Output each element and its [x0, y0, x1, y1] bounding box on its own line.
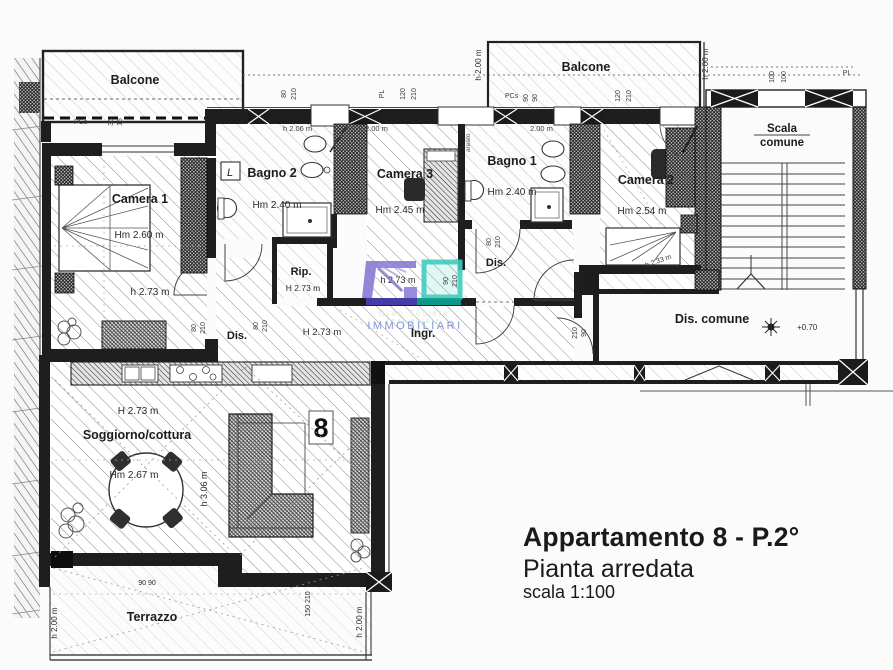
svg-text:+0.70: +0.70 [797, 323, 818, 332]
svg-text:Camera 2: Camera 2 [618, 173, 674, 187]
svg-text:35: 35 [108, 118, 115, 126]
svg-text:Balcone: Balcone [562, 60, 611, 74]
svg-text:Terrazzo: Terrazzo [127, 610, 178, 624]
svg-text:PL: PL [379, 90, 386, 99]
svg-text:PCs: PCs [505, 93, 519, 100]
svg-text:Hm 2.54 m: Hm 2.54 m [618, 206, 667, 217]
svg-text:Gran Societa: Gran Societa [379, 309, 450, 318]
svg-text:210: 210 [572, 327, 579, 339]
svg-text:210: 210 [411, 88, 418, 100]
svg-text:h 2.00 m: h 2.00 m [50, 607, 59, 638]
svg-text:90: 90 [581, 329, 588, 337]
svg-text:H 2.73 m: H 2.73 m [118, 406, 159, 417]
svg-text:Scala: Scala [767, 123, 798, 135]
svg-text:PCs: PCs [74, 119, 88, 126]
svg-text:100: 100 [769, 71, 776, 83]
svg-text:90: 90 [523, 94, 530, 102]
svg-text:Ingr.: Ingr. [411, 328, 435, 340]
svg-text:120: 120 [615, 90, 622, 102]
svg-text:H 2.73 m: H 2.73 m [303, 327, 342, 338]
svg-text:90 90: 90 90 [138, 580, 156, 587]
svg-text:Dis. comune: Dis. comune [675, 312, 749, 326]
svg-text:Hm 2.45 m: Hm 2.45 m [376, 205, 425, 216]
svg-text:210: 210 [262, 320, 269, 332]
svg-text:2.00 m: 2.00 m [365, 124, 388, 133]
svg-text:areato: areato [465, 133, 472, 152]
svg-text:Hm 2.67 m: Hm 2.67 m [110, 470, 159, 481]
svg-text:210: 210 [291, 88, 298, 100]
svg-text:h 2.00 m: h 2.00 m [701, 48, 710, 79]
svg-text:2.00 m: 2.00 m [530, 124, 553, 133]
svg-text:90: 90 [532, 94, 539, 102]
svg-text:80: 80 [281, 90, 288, 98]
svg-text:210: 210 [200, 322, 207, 334]
svg-text:Hm 2.60 m: Hm 2.60 m [115, 230, 164, 241]
svg-text:Soggiorno/cottura: Soggiorno/cottura [83, 428, 192, 442]
svg-text:Rip.: Rip. [291, 266, 312, 278]
svg-text:L: L [227, 167, 233, 179]
svg-text:210: 210 [452, 275, 459, 287]
svg-text:Bagno 1: Bagno 1 [487, 154, 536, 168]
svg-text:h 2.00 m: h 2.00 m [355, 606, 364, 637]
svg-text:Hm 2.40 m: Hm 2.40 m [488, 187, 537, 198]
svg-text:150 210: 150 210 [305, 591, 312, 616]
svg-text:h 2.73 m: h 2.73 m [131, 287, 170, 298]
svg-text:Bagno 2: Bagno 2 [247, 166, 296, 180]
svg-text:PL: PL [843, 70, 852, 77]
svg-text:Appartamento 8 - P.2°: Appartamento 8 - P.2° [523, 522, 799, 552]
svg-text:comune: comune [760, 137, 804, 149]
svg-text:scala 1:100: scala 1:100 [523, 582, 615, 602]
svg-text:80: 80 [253, 322, 260, 330]
svg-text:8: 8 [313, 413, 328, 443]
svg-text:h 2.06 m: h 2.06 m [283, 124, 312, 133]
svg-text:210: 210 [495, 236, 502, 248]
svg-text:Dis.: Dis. [486, 257, 506, 269]
svg-text:Hm 2.40 m: Hm 2.40 m [253, 200, 302, 211]
svg-text:100: 100 [781, 71, 788, 83]
svg-text:120: 120 [400, 88, 407, 100]
svg-text:15: 15 [117, 118, 124, 126]
svg-text:80: 80 [486, 238, 493, 246]
svg-text:Balcone: Balcone [111, 73, 160, 87]
svg-text:h 2.00 m: h 2.00 m [474, 49, 483, 80]
svg-text:Camera 1: Camera 1 [112, 192, 168, 206]
svg-text:H 2.73 m: H 2.73 m [286, 283, 321, 293]
svg-text:90: 90 [443, 277, 450, 285]
svg-text:h 3.06 m: h 3.06 m [199, 471, 209, 506]
svg-text:Dis.: Dis. [227, 330, 247, 342]
svg-text:Camera 3: Camera 3 [377, 167, 433, 181]
svg-text:80: 80 [191, 324, 198, 332]
svg-text:210: 210 [626, 90, 633, 102]
svg-text:Pianta arredata: Pianta arredata [523, 555, 694, 583]
